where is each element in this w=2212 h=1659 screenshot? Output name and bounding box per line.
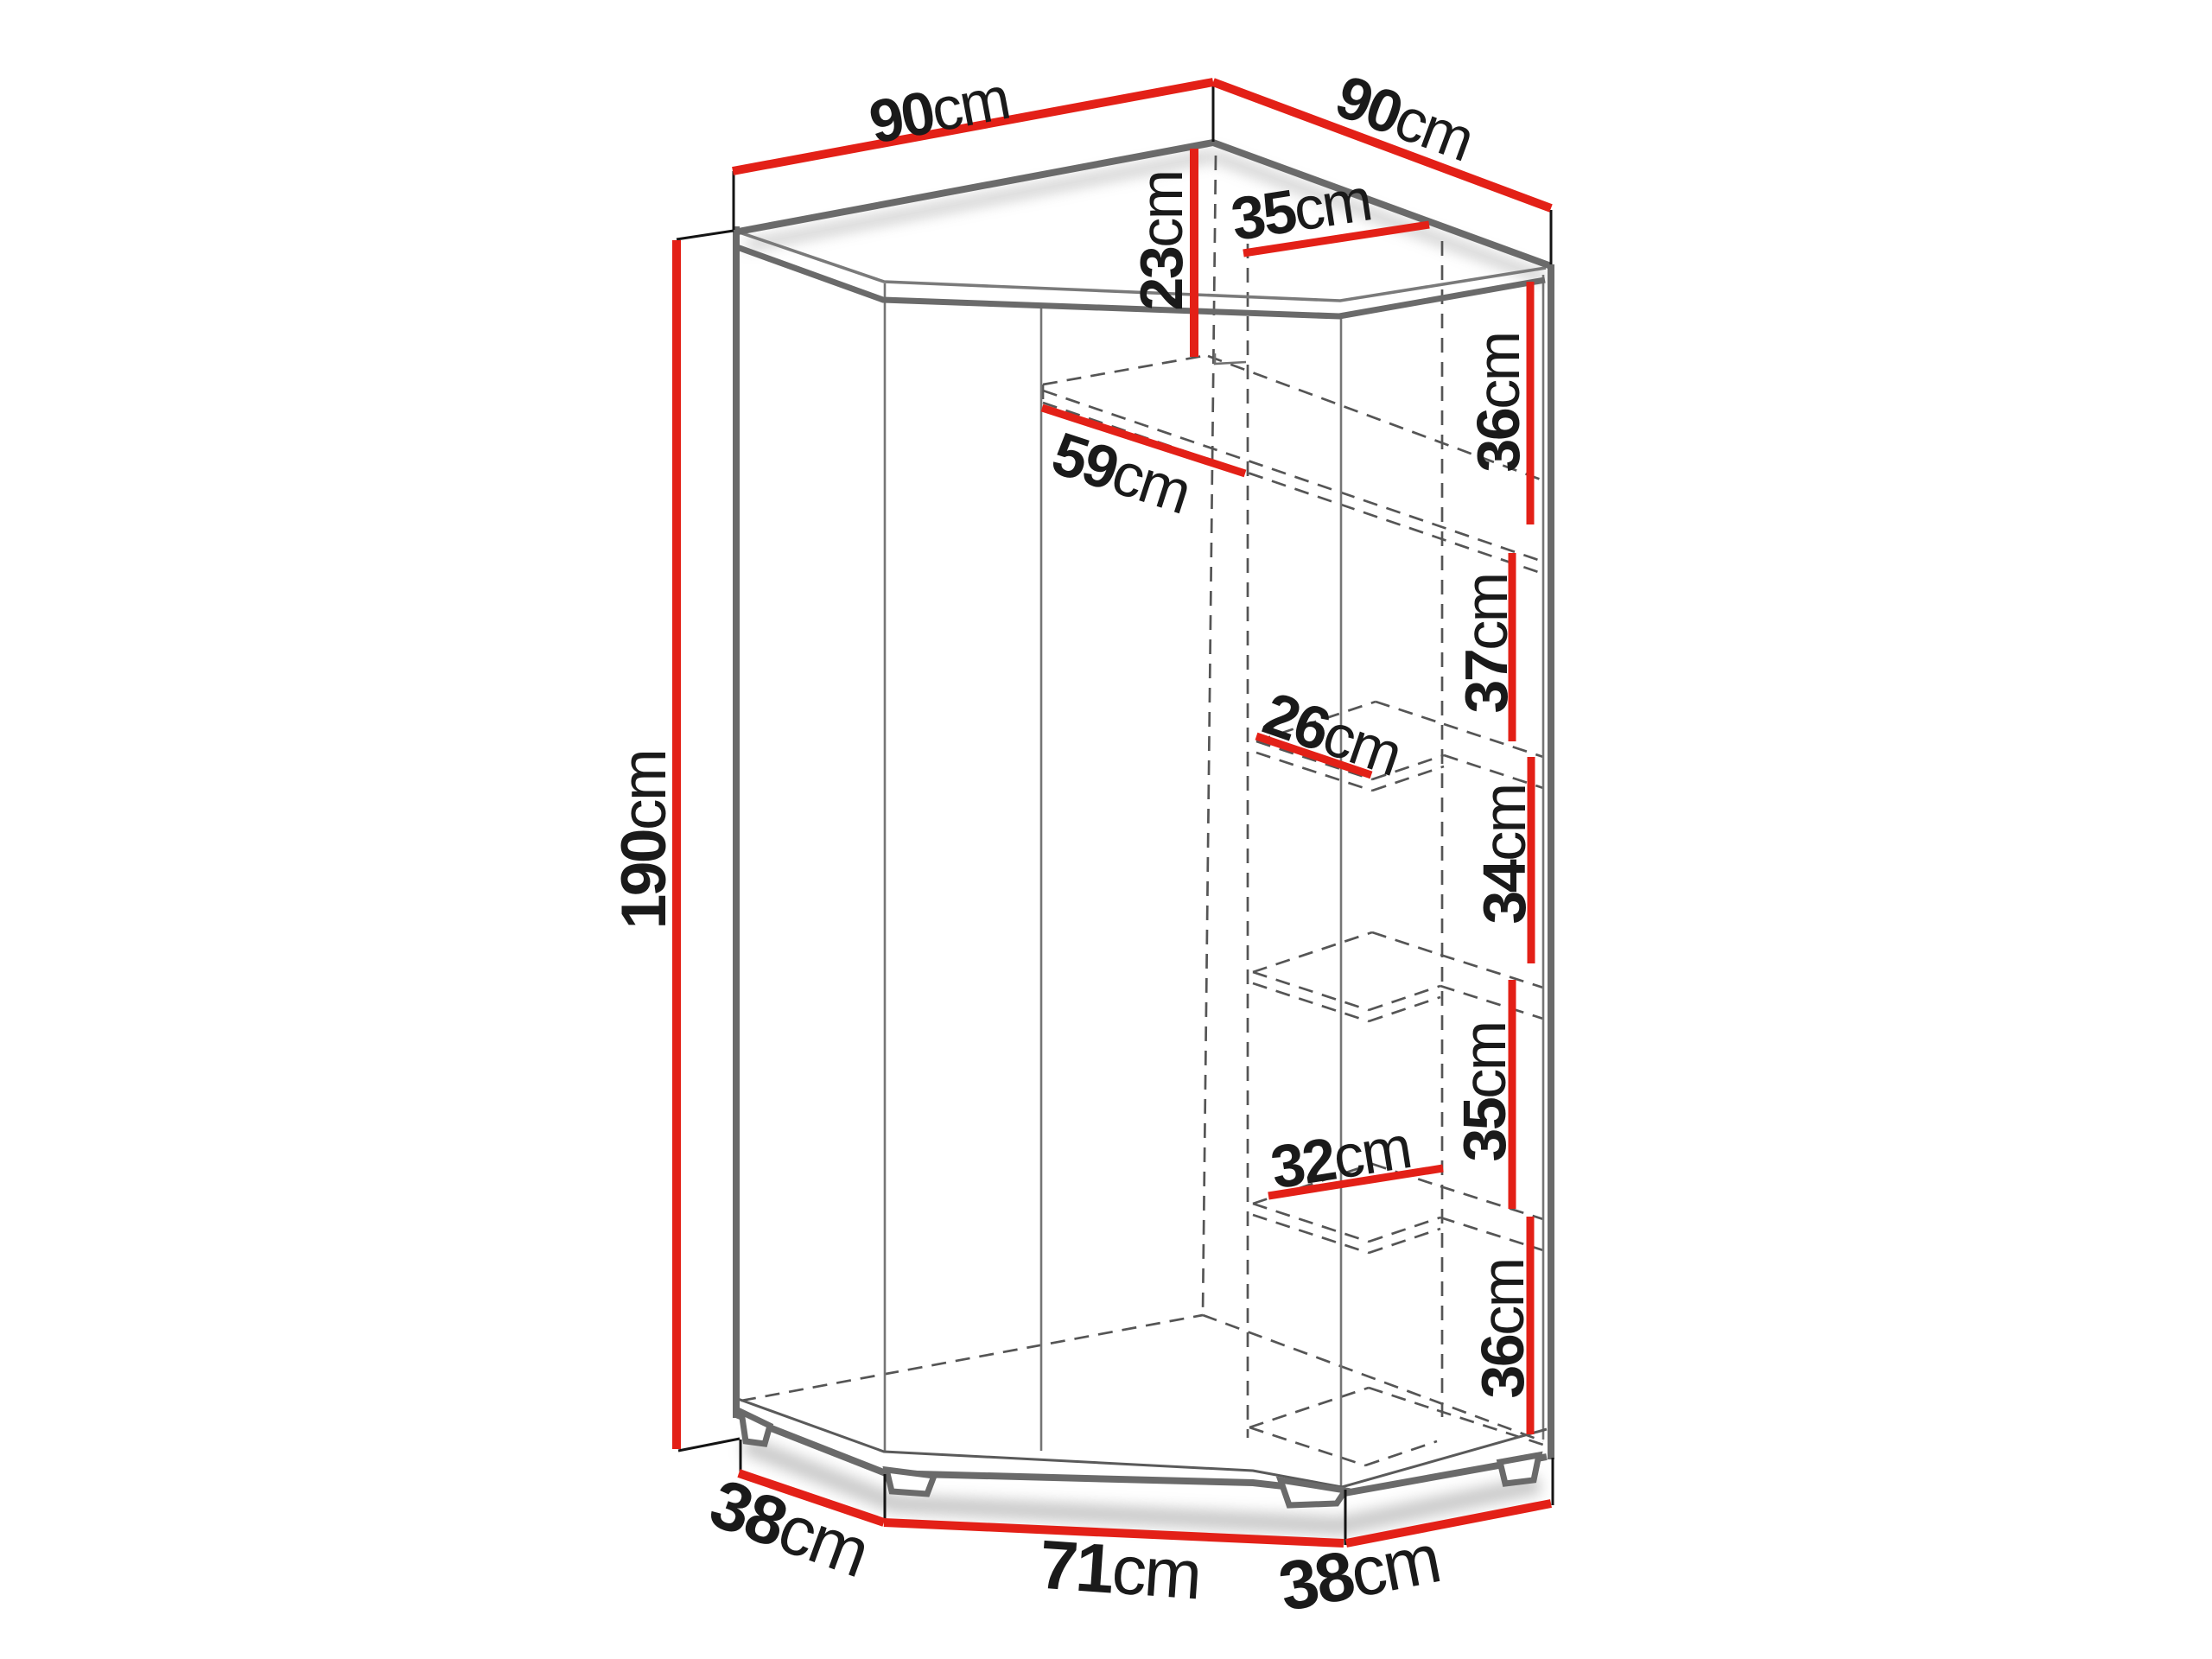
svg-text:36cm: 36cm bbox=[1465, 333, 1532, 472]
svg-text:71cm: 71cm bbox=[1037, 1526, 1202, 1614]
svg-text:23cm: 23cm bbox=[1128, 171, 1195, 310]
svg-text:35cm: 35cm bbox=[1451, 1022, 1518, 1161]
svg-text:190cm: 190cm bbox=[609, 751, 679, 930]
svg-text:37cm: 37cm bbox=[1452, 574, 1520, 713]
svg-text:36cm: 36cm bbox=[1469, 1259, 1536, 1398]
svg-text:34cm: 34cm bbox=[1471, 785, 1538, 924]
